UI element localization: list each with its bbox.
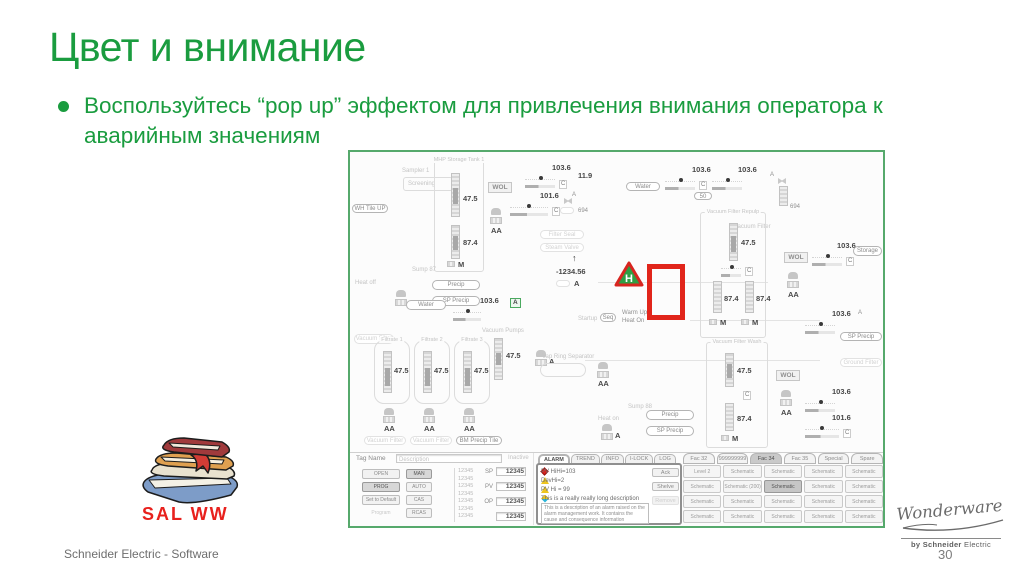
storage-button[interactable]: Storage [853,246,882,256]
sal-ww-label: SAL WW [142,504,229,525]
schematic-button[interactable]: Level 2 [683,465,721,478]
facility-tab[interactable]: Spare [851,453,883,464]
pump-base-icon [597,371,609,378]
tank-column [713,281,722,313]
value-input[interactable]: 12345 [496,482,526,491]
footer-text: Schneider Electric - Software [64,547,219,561]
level-meter [510,204,548,213]
wol-indicator: WOL [784,252,808,263]
level-meter [719,391,739,400]
schematic-button[interactable]: Schematic [845,510,883,523]
alarm-row[interactable]: PV Hi = 99 [541,485,649,494]
schematic-button[interactable]: Schematic [845,465,883,478]
level-meter [525,176,555,185]
pipe-line [585,360,820,361]
level-meter [721,265,741,274]
c-flag: C [846,257,854,266]
schematic-button[interactable]: Schematic [683,480,721,493]
level-meter [805,400,835,409]
wh-tile-up-button[interactable]: WH Tile UP [352,204,388,213]
motor-icon [721,435,729,441]
filtrate-2-panel: Filtrate 2 47.5 [414,340,450,404]
page-title: Цвет и внимание [49,24,366,71]
schematic-button[interactable]: Schematic [804,495,842,508]
pump-base-icon [601,433,613,440]
precip-button[interactable]: Precip [432,280,480,290]
filtrate-3-panel: Filtrate 3 47.5 [454,340,490,404]
description-field[interactable]: Description [396,454,502,463]
popup-highlight-rectangle [647,264,685,320]
water-button[interactable]: Water [406,300,446,310]
pump-icon [464,408,474,415]
vacuum-filter-wash-panel: Vacuum Filter Wash 47.5 C 87.4 M [706,342,768,448]
pump-icon [384,408,394,415]
alarm-buttons: AckShelveRemove [652,468,679,505]
sp-precip-button[interactable]: SP Precip [646,426,694,436]
schematic-button[interactable]: Schematic [723,495,761,508]
scale-tick: 12345 [458,513,473,521]
books-clipart [132,426,246,506]
valve-icon [564,198,572,204]
scale-tick: 12345 [458,476,473,484]
tank-column [451,225,460,259]
sump87-label: Sump 87 [412,267,436,274]
scale-tick: 12345 [458,483,473,491]
wonderware-logo: Wonderware by Schneider Electric [893,501,1009,549]
field-row: PV 12345 [482,482,526,491]
page-number: 30 [938,547,952,562]
schematic-button[interactable]: Schematic [764,480,802,493]
alarm-row[interactable]: PV HiHi=103 [541,467,649,476]
tag-section: Tag Name Description Inactive OPENMANPRO… [352,453,534,525]
schematic-button[interactable]: Schematic [764,495,802,508]
pump-base-icon [780,399,792,406]
schematic-button[interactable]: Schematic [804,510,842,523]
pump-icon [598,362,608,369]
level-meter [812,254,842,263]
vacuum-filter-link[interactable]: Vacuum Filter [364,436,406,445]
pump-icon [788,272,798,279]
tank-column [725,353,734,387]
value-input[interactable]: 12345 [496,497,526,506]
schematic-grid: Level 2SchematicSchematicSchematicSchema… [683,465,883,523]
alarm-section: ALARMTRENDINFOI-LOCKLOG PV HiHi=103 DevH… [536,453,682,526]
alarm-action-button[interactable]: Shelve [652,482,679,491]
pump-base-icon [383,416,395,423]
steam-valve-button[interactable]: Steam Valve [540,243,584,252]
bullet-dot [58,101,69,112]
facility-tab[interactable]: Fac 32 [683,453,715,464]
pump-icon [781,390,791,397]
pump-base-icon [463,416,475,423]
tank-column [383,351,392,393]
level-meter [805,426,839,435]
mode-button[interactable]: MAN [406,469,432,479]
value-input[interactable]: 12345 [496,512,526,521]
mode-button[interactable]: PROG [362,482,400,492]
tank-column [725,403,734,431]
alarm-row[interactable]: This is a really really long description [541,494,649,503]
field-row: SP 12345 [482,467,526,476]
level-meter [453,309,481,318]
sp-precip-button[interactable]: SP Precip [840,332,882,341]
schematic-button[interactable]: Schematic [723,510,761,523]
bullet-text: Воспользуйтесь “pop up” эффектом для при… [84,91,940,151]
logo-divider [901,538,1001,539]
facility-tab[interactable]: Fac 35 [784,453,816,464]
schematic-button[interactable]: Schematic [723,465,761,478]
seq-button[interactable]: Seq [600,313,616,322]
alarm-action-button[interactable]: Ack [652,468,679,477]
ground-filter-link[interactable]: Ground Filter [840,358,882,367]
wonderware-script: Wonderware [893,501,1009,533]
tank-column [745,281,754,313]
mode-button[interactable]: AUTO [406,482,432,492]
scale-tick: 12345 [458,498,473,506]
tank-column [423,351,432,393]
pump-icon [396,290,406,297]
schematic-button[interactable]: Schematic [804,465,842,478]
field-row: OP 12345 [482,497,526,506]
small-box [556,280,570,287]
status-a-box: A [510,298,521,308]
svg-text:H: H [625,273,633,285]
c-flag: C [559,180,567,189]
alarm-description: This is a description of an alarm raised… [541,503,649,524]
tank-column [494,338,503,380]
alarm-row[interactable]: DevHi=2 [541,476,649,485]
alarm-action-button[interactable]: Remove [652,496,679,505]
scale-tick: 12345 [458,506,473,514]
mode-button[interactable]: Program Cascade [362,508,400,518]
mode-button[interactable]: RCAS [406,508,432,518]
mode-button[interactable]: Set to Default [362,495,400,505]
value-scale: 12345123451234512345123451234512345 [454,468,473,522]
vap-ring-separator [540,363,586,377]
precip-button[interactable]: Precip [646,410,694,420]
pump-icon [424,408,434,415]
filter-seal-button[interactable]: Filter Seal [540,230,584,239]
vacuum-filter-repulp-panel: Vacuum Filter Repulp 47.5 C 87.4 87.4 M … [700,212,766,338]
facility-section: Fac 32999999999Fac 34Fac 35SpecialSpare … [683,453,883,526]
valve-icon [778,178,786,184]
alarm-panel: PV HiHi=103 DevHi=2 PV Hi = 99 This is a… [536,463,682,525]
wol-indicator: WOL [776,370,800,381]
wol-indicator: WOL [488,182,512,193]
water-button[interactable]: Water [626,182,660,191]
motor-icon [447,261,455,267]
pump-base-icon [490,217,502,224]
pump-base-icon [787,281,799,288]
presentation-slide: Цвет и внимание Воспользуйтесь “pop up” … [0,0,1024,574]
schematic-button[interactable]: Schematic [683,510,721,523]
mode-button[interactable]: CAS [406,495,432,505]
schematic-button[interactable]: Schematic [845,495,883,508]
alarm-list: PV HiHi=103 DevHi=2 PV Hi = 99 This is a… [541,467,649,503]
scale-tick: 12345 [458,468,473,476]
sampler-label: Sampler 1 [402,168,429,175]
pipe-column [779,186,788,206]
mode-button[interactable]: OPEN [362,469,400,479]
high-alarm-triangle-icon: H [614,260,644,288]
schematic-button[interactable]: Schematic (200) [723,480,761,493]
up-arrow-icon: ↑ [572,254,577,264]
c-flag: C [699,181,707,190]
setpoint-fields: SP 12345 PV 12345 OP 12345 12345 [482,467,526,521]
facility-tabs: Fac 32999999999Fac 34Fac 35SpecialSpare [683,453,883,464]
field-row: 12345 [482,512,526,521]
mhp-tank-panel: MHP Storage Tank 1 47.5 87.4 M [434,160,484,272]
schematic-button[interactable]: Schematic [764,465,802,478]
scale-tick: 12345 [458,491,473,499]
scada-screenshot: Sampler 1 Screening WH Tile UP MHP Stora… [348,150,885,528]
mode-buttons: OPENMANPROGAUTOSet to DefaultCASProgram … [362,469,432,518]
svg-text:Wonderware: Wonderware [896,501,1004,524]
level-meter [665,178,695,187]
facility-tab[interactable]: 999999999 [717,453,749,464]
pump-icon [602,424,612,431]
level-meter [805,322,835,331]
c-flag: C [843,429,851,438]
filtrate-1-panel: Filtrate 1 47.5 [374,340,410,404]
pump-icon [491,208,501,215]
schematic-button[interactable]: Schematic [845,480,883,493]
schematic-button[interactable]: Schematic [683,495,721,508]
motor-icon [741,319,749,325]
vacuum-filter-link[interactable]: Vacuum Filter [410,436,452,445]
facility-tab[interactable]: Fac 34 [750,453,782,464]
tank-column [729,223,738,261]
tank-column [451,173,460,217]
motor-icon [709,319,717,325]
c-flag: C [552,207,560,216]
tank-column [463,351,472,393]
level-meter [712,178,742,187]
value-input[interactable]: 12345 [496,467,526,476]
schematic-button[interactable]: Schematic [804,480,842,493]
bm-precip-tile-button[interactable]: BM Precip Tile [456,436,502,445]
small-box [560,207,574,214]
facility-tab[interactable]: Special [818,453,850,464]
pump-base-icon [423,416,435,423]
schematic-button[interactable]: Schematic [764,510,802,523]
mal-50-button[interactable]: 50 [694,192,712,200]
